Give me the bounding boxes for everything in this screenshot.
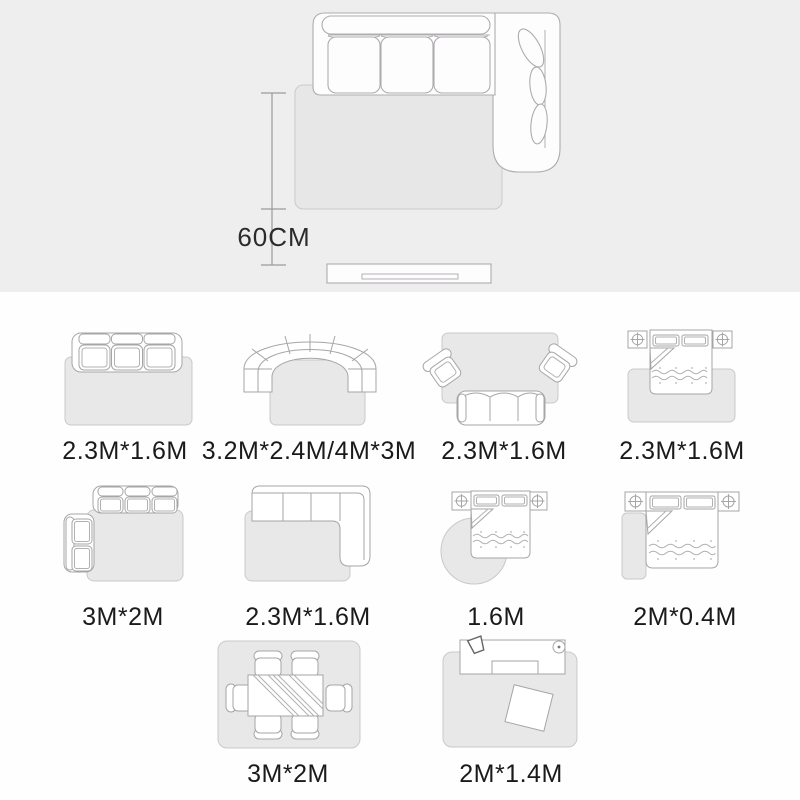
size-label: 2.3M*1.6M <box>619 438 744 466</box>
size-label: 2.3M*1.6M <box>245 604 370 632</box>
back-cushions <box>79 334 175 344</box>
rug <box>87 510 183 581</box>
side-unit <box>64 514 94 572</box>
sofa <box>457 391 545 425</box>
rug-size-guide: 60CM <box>0 0 800 800</box>
desk <box>460 636 565 674</box>
sofa-rug-tv-diagram <box>0 0 800 292</box>
curved-sofa-rug-diagram <box>235 325 385 430</box>
bed <box>471 491 530 558</box>
bed-round-rug-diagram <box>435 485 560 590</box>
nightstand-left <box>625 492 646 511</box>
dining-table-rug-diagram <box>213 636 365 752</box>
runner-rug <box>622 513 646 579</box>
nightstand-right <box>528 492 547 510</box>
nightstand-left <box>452 492 471 510</box>
corner-sofa-left-rug-diagram <box>56 480 196 586</box>
chaise-sofa-rug-diagram <box>240 480 375 590</box>
sofa <box>72 333 182 372</box>
sofa-armchairs-rug-diagram <box>420 328 580 430</box>
size-label: 3M*2M <box>82 604 164 632</box>
size-label: 2M*0.4M <box>633 604 737 632</box>
size-label: 3.2M*2.4M/4M*3M <box>202 438 417 466</box>
rug <box>295 85 502 209</box>
bed-runner-rug-diagram <box>615 485 745 590</box>
three-seat-sofa-rug-diagram <box>58 325 203 430</box>
nightstand-left <box>628 331 647 348</box>
hero-panel: 60CM <box>0 0 800 292</box>
size-label: 2.3M*1.6M <box>62 438 187 466</box>
seat-cushions <box>328 37 490 93</box>
size-label: 3M*2M <box>247 761 329 789</box>
seat-cushions <box>79 345 175 370</box>
nightstand-right <box>718 492 739 511</box>
sofa <box>93 486 178 513</box>
size-label: 2.3M*1.6M <box>441 438 566 466</box>
nightstand-right <box>713 331 732 348</box>
size-label: 1.6M <box>467 604 525 632</box>
bed-rug-diagram <box>618 325 743 428</box>
bed <box>650 330 712 394</box>
backrest <box>322 16 490 34</box>
bed <box>646 492 718 568</box>
size-label: 2M*1.4M <box>459 761 563 789</box>
distance-label: 60CM <box>237 224 310 250</box>
desk-rug-diagram <box>438 630 583 752</box>
tv-stand <box>327 264 491 283</box>
